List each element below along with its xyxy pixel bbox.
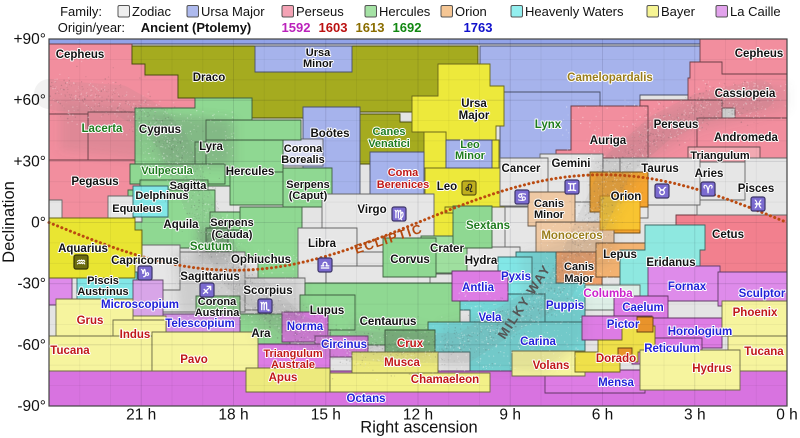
- svg-text:Libra: Libra: [308, 238, 337, 250]
- svg-text:Scutum: Scutum: [190, 241, 232, 253]
- svg-text:Hercules: Hercules: [379, 4, 431, 19]
- svg-text:♒︎: ♒︎: [76, 257, 86, 269]
- svg-text:Microscopium: Microscopium: [101, 299, 179, 311]
- svg-text:♏︎: ♏︎: [259, 301, 270, 313]
- svg-text:Grus: Grus: [77, 315, 104, 327]
- svg-text:1603: 1603: [319, 20, 348, 35]
- svg-text:Perseus: Perseus: [654, 119, 699, 131]
- svg-text:Hercules: Hercules: [226, 166, 275, 178]
- svg-text:Pictor: Pictor: [607, 319, 640, 331]
- svg-text:Crater: Crater: [430, 243, 464, 255]
- svg-text:Cepheus: Cepheus: [735, 48, 784, 60]
- svg-text:♉︎: ♉︎: [657, 186, 667, 198]
- svg-text:Minor: Minor: [303, 58, 334, 70]
- svg-text:3 h: 3 h: [684, 407, 706, 424]
- svg-text:Indus: Indus: [120, 329, 151, 341]
- svg-text:Ara: Ara: [251, 328, 271, 340]
- svg-text:9 h: 9 h: [499, 407, 521, 424]
- svg-text:Triangulum: Triangulum: [690, 150, 750, 162]
- svg-text:Telescopium: Telescopium: [165, 318, 234, 330]
- svg-text:Aquila: Aquila: [163, 219, 199, 231]
- svg-text:0°: 0°: [31, 215, 46, 232]
- svg-text:Fornax: Fornax: [668, 281, 707, 293]
- svg-text:Minor: Minor: [455, 150, 486, 162]
- svg-text:Lynx: Lynx: [535, 119, 562, 131]
- svg-text:Corvus: Corvus: [390, 254, 430, 266]
- svg-text:Lacerta: Lacerta: [82, 123, 124, 135]
- svg-text:♌︎: ♌︎: [464, 183, 474, 195]
- svg-text:Crux: Crux: [397, 338, 424, 350]
- svg-text:Pyxis: Pyxis: [501, 271, 531, 283]
- svg-text:Australe: Australe: [271, 359, 315, 371]
- svg-text:Chamaeleon: Chamaeleon: [411, 374, 479, 386]
- svg-text:Sextans: Sextans: [466, 220, 510, 232]
- svg-text:0 h: 0 h: [776, 407, 798, 424]
- svg-text:Zodiac: Zodiac: [132, 4, 172, 19]
- svg-text:Venatici: Venatici: [368, 138, 410, 150]
- svg-text:Reticulum: Reticulum: [644, 343, 700, 355]
- svg-text:Cepheus: Cepheus: [56, 49, 105, 61]
- svg-text:Ursa Major: Ursa Major: [201, 4, 265, 19]
- svg-text:Orion: Orion: [611, 191, 642, 203]
- svg-text:Vela: Vela: [478, 312, 502, 324]
- svg-text:Tucana: Tucana: [50, 345, 90, 357]
- svg-text:Virgo: Virgo: [357, 204, 386, 216]
- svg-text:Canes: Canes: [372, 126, 405, 138]
- svg-text:Leo: Leo: [437, 181, 457, 193]
- svg-text:+60°: +60°: [14, 92, 47, 109]
- svg-text:Puppis: Puppis: [546, 300, 584, 312]
- svg-text:♎︎: ♎︎: [320, 260, 330, 272]
- svg-text:Minor: Minor: [534, 209, 565, 221]
- svg-text:Horologium: Horologium: [668, 326, 733, 338]
- svg-text:Gemini: Gemini: [552, 158, 591, 170]
- svg-text:Origin/year:: Origin/year:: [58, 20, 125, 35]
- svg-text:Scorpius: Scorpius: [243, 285, 292, 297]
- svg-text:Ophiuchus: Ophiuchus: [231, 254, 291, 266]
- svg-text:Mensa: Mensa: [598, 377, 634, 389]
- svg-text:La Caille: La Caille: [730, 4, 781, 19]
- svg-text:Sagittarius: Sagittarius: [180, 271, 239, 283]
- svg-text:Aries: Aries: [695, 168, 724, 180]
- svg-text:♐︎: ♐︎: [202, 285, 212, 297]
- svg-text:♓︎: ♓︎: [753, 199, 763, 211]
- svg-text:Apus: Apus: [269, 372, 298, 384]
- svg-text:Cygnus: Cygnus: [139, 124, 181, 136]
- svg-text:Orion: Orion: [455, 4, 487, 19]
- svg-text:Borealis: Borealis: [281, 154, 324, 166]
- svg-text:Carina: Carina: [520, 336, 556, 348]
- svg-text:1763: 1763: [464, 20, 493, 35]
- svg-text:Pegasus: Pegasus: [71, 176, 118, 188]
- svg-text:Dorado: Dorado: [596, 353, 636, 365]
- svg-text:Centaurus: Centaurus: [360, 316, 417, 328]
- svg-text:18 h: 18 h: [218, 407, 248, 424]
- svg-text:Perseus: Perseus: [296, 4, 344, 19]
- svg-text:Lyra: Lyra: [199, 141, 223, 153]
- svg-text:Declination: Declination: [0, 181, 18, 263]
- svg-text:♍︎: ♍︎: [394, 209, 404, 221]
- svg-text:Taurus: Taurus: [641, 163, 679, 175]
- svg-text:Lupus: Lupus: [310, 305, 345, 317]
- svg-text:Heavenly Waters: Heavenly Waters: [525, 4, 624, 19]
- svg-text:Major: Major: [564, 273, 594, 285]
- svg-text:Sculptor: Sculptor: [739, 288, 786, 300]
- svg-text:Circinus: Circinus: [321, 339, 367, 351]
- svg-text:-90°: -90°: [17, 398, 46, 415]
- svg-text:Ursa: Ursa: [461, 98, 487, 110]
- svg-text:Delphinus: Delphinus: [135, 190, 188, 202]
- svg-text:Ancient (Ptolemy): Ancient (Ptolemy): [141, 20, 252, 35]
- svg-text:(Cauda): (Cauda): [212, 229, 253, 241]
- svg-text:Equuleus: Equuleus: [112, 203, 162, 215]
- svg-text:Norma: Norma: [287, 321, 324, 333]
- svg-text:Lepus: Lepus: [603, 249, 637, 261]
- svg-text:Volans: Volans: [533, 360, 570, 372]
- svg-text:Cancer: Cancer: [502, 163, 542, 175]
- svg-text:Eridanus: Eridanus: [646, 257, 695, 269]
- svg-text:Musca: Musca: [384, 357, 420, 369]
- svg-text:6 h: 6 h: [592, 407, 614, 424]
- svg-text:♋︎: ♋︎: [517, 192, 527, 204]
- svg-text:-30°: -30°: [17, 276, 46, 293]
- svg-text:♊︎: ♊︎: [567, 182, 577, 194]
- svg-text:♑︎: ♑︎: [140, 268, 150, 280]
- svg-text:+30°: +30°: [14, 153, 47, 170]
- svg-text:Pavo: Pavo: [180, 354, 208, 366]
- svg-text:Cetus: Cetus: [712, 229, 744, 241]
- svg-text:15 h: 15 h: [311, 407, 341, 424]
- svg-text:Cassiopeia: Cassiopeia: [715, 88, 776, 100]
- svg-text:Berenices: Berenices: [377, 179, 430, 191]
- svg-text:1613: 1613: [356, 20, 385, 35]
- svg-text:Caelum: Caelum: [622, 302, 664, 314]
- svg-text:Hydrus: Hydrus: [692, 363, 732, 375]
- svg-text:Austrinus: Austrinus: [77, 286, 128, 298]
- svg-text:Family:: Family:: [60, 4, 102, 19]
- svg-text:Aquarius: Aquarius: [58, 243, 108, 255]
- svg-text:Octans: Octans: [347, 393, 386, 405]
- svg-text:Major: Major: [459, 110, 490, 122]
- svg-text:Auriga: Auriga: [590, 135, 627, 147]
- svg-text:1592: 1592: [282, 20, 311, 35]
- svg-text:1692: 1692: [393, 20, 422, 35]
- svg-text:Monoceros: Monoceros: [541, 230, 602, 242]
- svg-text:Boötes: Boötes: [311, 128, 350, 140]
- svg-text:Phoenix: Phoenix: [733, 307, 778, 319]
- svg-text:Camelopardalis: Camelopardalis: [567, 72, 653, 84]
- svg-text:Vulpecula: Vulpecula: [141, 165, 193, 177]
- svg-text:(Caput): (Caput): [289, 190, 328, 202]
- svg-text:Draco: Draco: [193, 72, 226, 84]
- svg-text:Canis: Canis: [564, 261, 594, 273]
- svg-text:Right ascension: Right ascension: [360, 419, 477, 437]
- svg-text:Andromeda: Andromeda: [714, 132, 779, 144]
- svg-text:Hydra: Hydra: [465, 255, 498, 267]
- svg-text:+90°: +90°: [14, 31, 47, 48]
- svg-text:Capricornus: Capricornus: [111, 255, 179, 267]
- svg-text:-60°: -60°: [17, 337, 46, 354]
- svg-text:21 h: 21 h: [126, 407, 156, 424]
- svg-text:Columba: Columba: [583, 288, 633, 300]
- svg-text:Antlia: Antlia: [462, 282, 495, 294]
- svg-text:Coma: Coma: [388, 167, 419, 179]
- svg-text:Serpens: Serpens: [210, 217, 253, 229]
- svg-text:Pisces: Pisces: [738, 183, 774, 195]
- svg-text:♈︎: ♈︎: [703, 184, 713, 196]
- svg-text:Tucana: Tucana: [744, 346, 784, 358]
- svg-text:Bayer: Bayer: [661, 4, 696, 19]
